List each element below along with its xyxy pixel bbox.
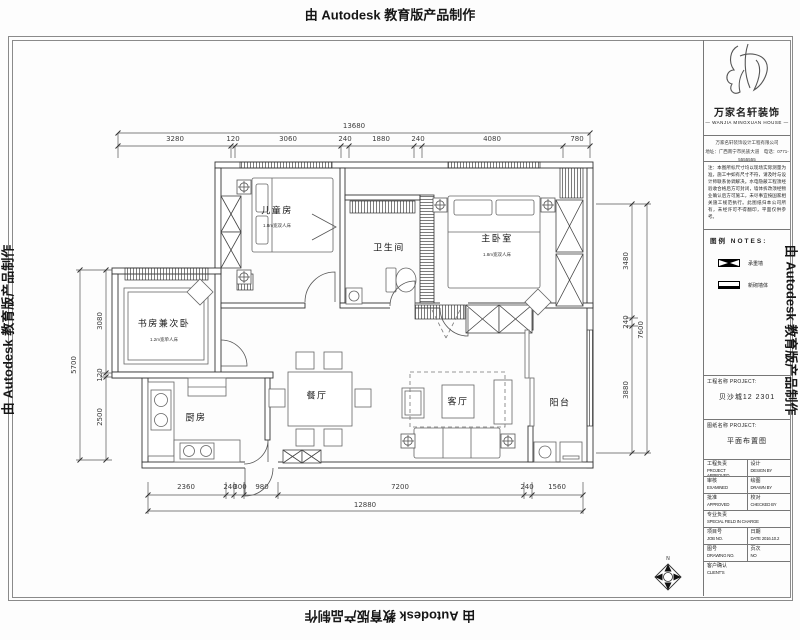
dim-bottom-3: 300	[233, 483, 246, 491]
tb-row-1: 工程负责PROJECT APPROVED 设计DESIGN BY	[704, 460, 790, 477]
watermark-bottom: 由 Autodesk 教育版产品制作	[305, 608, 475, 627]
field-checked-en: CHECKED BY	[751, 502, 791, 508]
company-name: 万家名轩装饰	[704, 104, 790, 119]
dim-top-total: 13680	[343, 122, 365, 130]
dim-left-2: 120	[96, 368, 104, 381]
general-notes: 注：本图所标尺寸均以现场实际测量为准，施工中如有尺寸不符，请及时与设计师联系协调…	[704, 162, 790, 230]
tb-row-4: 专业负责SPECIAL FIELD IN CHARGE	[704, 511, 790, 528]
tb-row-3: 批准APPROVED 校对CHECKED BY	[704, 494, 790, 511]
field-approved-en: APPROVED	[707, 502, 747, 508]
field-job-en: JOB NO.	[707, 536, 747, 542]
dim-top-2: 120	[226, 135, 239, 143]
legend-solid-wall-icon	[718, 259, 740, 267]
company-logo-icon	[704, 40, 790, 102]
project-name-value: 贝沙城12 2301	[704, 392, 790, 402]
dim-bottom-4: 980	[255, 483, 268, 491]
field-client-en: CLIENT'S	[707, 570, 790, 576]
project-name-label: 工程名称 PROJECT:	[707, 378, 790, 385]
field-project-approved-en: PROJECT APPROVED	[707, 468, 747, 477]
dim-top-7: 4080	[483, 135, 501, 143]
field-drawingno-en: DRAWING NO.	[707, 553, 747, 559]
tb-row-7: 客户确认CLIENT'S	[704, 562, 790, 596]
room-label-study: 书房兼次卧	[138, 317, 191, 330]
dim-left-1: 3080	[96, 312, 104, 330]
field-examined-en: EXAMINED	[707, 485, 747, 491]
dim-bottom-total: 12880	[354, 501, 376, 509]
room-sub-study: 1.2m宽单人床	[150, 337, 178, 343]
title-block: 万家名轩装饰 — WANJIA MINGXUAN HOUSE — 万家名轩装饰设…	[703, 40, 790, 596]
dim-top-1: 3280	[166, 135, 184, 143]
drawing-sheet: 儿童房 1.8m宽双人床 卫生间 主卧室 1.8m宽双人床 书房兼次卧 1.2m…	[0, 0, 800, 640]
tb-row-6: 图号DRAWING NO. 页次NO	[704, 545, 790, 562]
dim-top-3: 3060	[279, 135, 297, 143]
room-sub-children: 1.8m宽双人床	[263, 223, 291, 229]
watermark-top: 由 Autodesk 教育版产品制作	[305, 5, 475, 24]
room-label-living: 客厅	[447, 395, 468, 408]
tb-row-5: 项目号JOB NO. 日期DATE 2016.10.2	[704, 528, 790, 545]
company-address-line1: 万家名轩装饰设计工程有限公司	[704, 139, 790, 148]
dim-right-2: 240	[622, 315, 630, 328]
room-sub-master: 1.8m宽双人床	[483, 252, 511, 258]
field-date-en: DATE 2016.10.2	[751, 536, 791, 542]
tb-row-2: 审核EXAMINED 绘图DRAWN BY	[704, 477, 790, 494]
legend-new-wall-icon	[718, 281, 740, 289]
field-pageno-en: NO	[751, 553, 791, 559]
legend-title: 图例 NOTES:	[710, 235, 790, 245]
room-label-kitchen: 厨房	[185, 411, 206, 424]
legend-row-2: 新砌墙体	[718, 281, 790, 289]
room-label-dining: 餐厅	[306, 389, 327, 402]
room-label-bathroom: 卫生间	[373, 241, 405, 254]
room-label-children: 儿童房	[261, 204, 293, 217]
dim-left-3: 2500	[96, 408, 104, 426]
legend-section: 图例 NOTES: 承重墙 新砌墙体	[704, 230, 790, 376]
dim-bottom-7: 1560	[548, 483, 566, 491]
legend-label-2: 新砌墙体	[748, 282, 768, 289]
sheet-name-label: 图纸名称 PROJECT:	[707, 422, 790, 429]
company-name-en: — WANJIA MINGXUAN HOUSE —	[704, 120, 790, 125]
company-brand: 万家名轩装饰 — WANJIA MINGXUAN HOUSE —	[704, 102, 790, 136]
dim-left-total: 5700	[70, 356, 78, 374]
company-address: 万家名轩装饰设计工程有限公司 地址：广西南宁市民族大道 电话：0771-5555…	[704, 136, 790, 162]
dim-right-1: 3480	[622, 252, 630, 270]
hatched-wall	[420, 195, 434, 303]
dim-bottom-6: 240	[520, 483, 533, 491]
field-special-en: SPECIAL FIELD IN CHARGE	[707, 519, 790, 525]
sheet-name-value: 平面布置图	[704, 436, 790, 446]
dim-top-4: 240	[338, 135, 351, 143]
compass-north-label: N	[666, 556, 670, 562]
legend-label-1: 承重墙	[748, 260, 763, 267]
watermark-right: 由 Autodesk 教育版产品制作	[783, 245, 800, 415]
floor-plan-svg	[0, 0, 800, 640]
dim-top-8: 780	[570, 135, 583, 143]
room-label-balcony: 阳台	[549, 396, 570, 409]
room-label-master: 主卧室	[481, 232, 513, 245]
dim-top-5: 1880	[372, 135, 390, 143]
field-design-en: DESIGN BY	[751, 468, 791, 474]
dim-right-total: 7600	[637, 321, 645, 339]
compass-icon	[655, 564, 681, 590]
sheet-name-section: 图纸名称 PROJECT: 平面布置图	[704, 420, 790, 460]
watermark-left: 由 Autodesk 教育版产品制作	[0, 245, 17, 415]
dim-top-6: 240	[411, 135, 424, 143]
field-drawn-en: DRAWN BY	[751, 485, 791, 491]
project-name-section: 工程名称 PROJECT: 贝沙城12 2301	[704, 376, 790, 420]
dim-right-3: 3880	[622, 381, 630, 399]
legend-row-1: 承重墙	[718, 259, 790, 267]
dim-bottom-5: 7200	[391, 483, 409, 491]
dim-bottom-1: 2360	[177, 483, 195, 491]
